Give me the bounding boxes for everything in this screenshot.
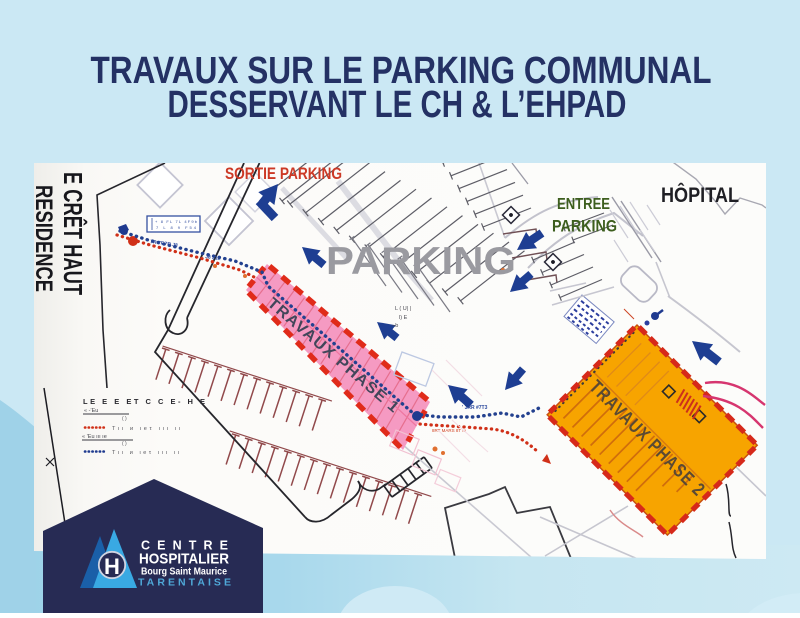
svg-text:RESIDENCE: RESIDENCE [30, 185, 57, 292]
svg-text:HOSPITALIER: HOSPITALIER [139, 551, 229, 568]
svg-text:( ): ( ) [122, 441, 127, 447]
svg-text:l) E: l) E [399, 315, 408, 321]
svg-text:HÔPITAL: HÔPITAL [661, 183, 739, 207]
svg-text:TARENTAISE: TARENTAISE [138, 577, 231, 589]
svg-text:E CRÊT HAUT: E CRÊT HAUT [58, 172, 88, 295]
svg-text:H: H [104, 554, 120, 579]
svg-text:« ʼEu ııı ıе: « ʼEu ııı ıе [82, 434, 107, 440]
svg-text:PARKING: PARKING [326, 240, 516, 283]
svg-text:SORTIE PARKING: SORTIE PARKING [225, 164, 342, 183]
svg-text:Tιι и ιеτ ııι ιι: Tιι и ιеτ ııι ιι [112, 426, 181, 432]
svg-text:« -’Eu: « -’Eu [84, 408, 98, 414]
svg-text:+ 8 FL 7L 4F9b: + 8 FL 7L 4F9b [155, 219, 198, 224]
svg-text:8RT MARS 8T ııι: 8RT MARS 8T ııι [432, 428, 466, 433]
svg-text:L ( U| |: L ( U| | [395, 306, 411, 312]
svg-text:PARKING: PARKING [552, 217, 617, 236]
svg-text:¬b: ¬b [392, 323, 398, 329]
svg-text:( ): ( ) [122, 416, 127, 422]
svg-text:Tιι и ιеτ ııι ιι: Tιι и ιеτ ııι ιι [112, 450, 180, 456]
svg-text:DESSERVANT LE CH & L’EHPAD: DESSERVANT LE CH & L’EHPAD [168, 84, 627, 126]
svg-text:ENTREE: ENTREE [557, 196, 610, 213]
